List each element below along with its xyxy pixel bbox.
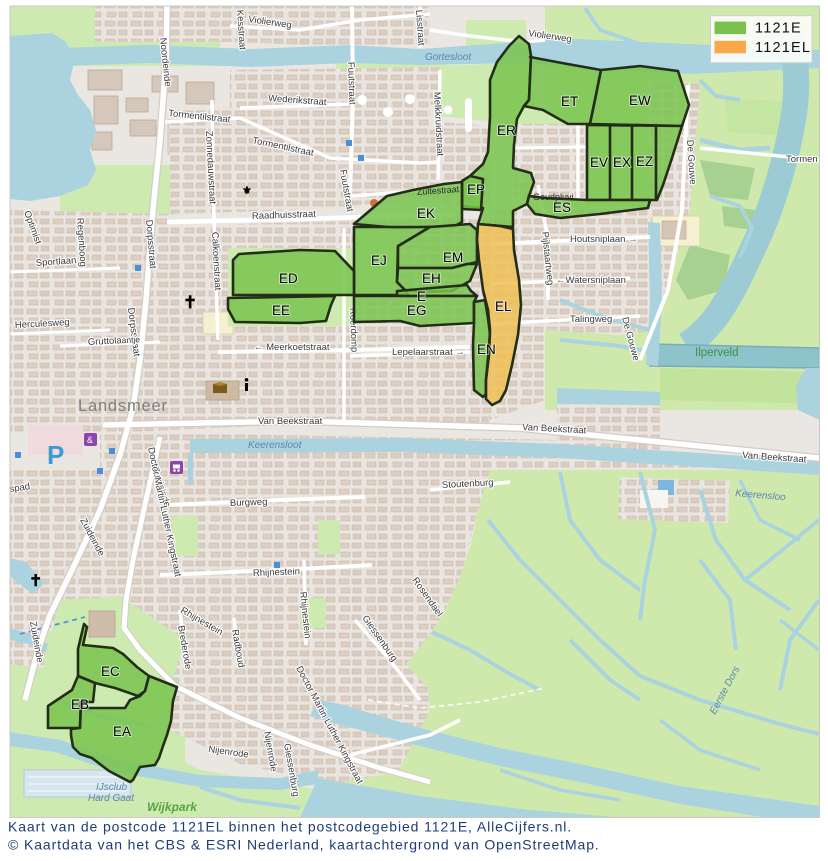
svg-text:Goudpluvi: Goudpluvi	[533, 192, 574, 202]
svg-text:EG: EG	[407, 303, 427, 318]
svg-text:EV: EV	[590, 155, 608, 170]
svg-text:Van Beekstraat: Van Beekstraat	[258, 416, 323, 427]
svg-text:Kaart van de postcode 1121EL b: Kaart van de postcode 1121EL binnen het …	[8, 819, 572, 835]
svg-text:Wijkpark: Wijkpark	[147, 800, 198, 814]
svg-text:Talingweg: Talingweg	[570, 314, 612, 325]
svg-text:P: P	[47, 440, 64, 470]
svg-text:ER: ER	[497, 123, 516, 138]
svg-text:←Watersniplaan: ←Watersniplaan	[556, 275, 626, 286]
svg-text:Keerensloot: Keerensloot	[248, 440, 303, 451]
svg-text:Houtsniplaan →: Houtsniplaan →	[570, 234, 638, 245]
svg-text:EJ: EJ	[371, 253, 387, 268]
svg-text:EW: EW	[629, 93, 651, 108]
svg-text:EM: EM	[443, 250, 463, 265]
svg-text:EA: EA	[113, 724, 131, 739]
svg-text:Hard Gaat: Hard Gaat	[88, 793, 135, 804]
svg-text:Landsmeer: Landsmeer	[78, 397, 168, 415]
svg-text:EK: EK	[417, 206, 435, 221]
svg-text:EC: EC	[101, 664, 120, 679]
svg-text:⚜: ⚜	[242, 185, 252, 197]
svg-text:E: E	[417, 289, 426, 304]
svg-text:&: &	[87, 435, 93, 445]
svg-text:Rhijnestein: Rhijnestein	[253, 566, 300, 579]
svg-text:1121EL: 1121EL	[755, 40, 811, 56]
svg-text:Fuutstraat: Fuutstraat	[345, 62, 357, 105]
svg-text:Lepelaarstraat →: Lepelaarstraat →	[392, 347, 465, 358]
svg-text:ES: ES	[553, 200, 571, 215]
svg-text:EX: EX	[613, 155, 631, 170]
svg-text:EL: EL	[495, 299, 512, 314]
svg-text:← Meerkoetstraat: ← Meerkoetstraat	[254, 342, 330, 353]
svg-text:Burgweg: Burgweg	[230, 497, 268, 509]
svg-text:Ilperveld: Ilperveld	[695, 347, 738, 359]
svg-text:✝: ✝	[29, 573, 42, 590]
svg-text:Gortesloot: Gortesloot	[425, 52, 472, 63]
svg-text:EP: EP	[467, 182, 485, 197]
svg-text:EN: EN	[477, 342, 496, 357]
svg-text:EZ: EZ	[636, 154, 653, 169]
svg-text:ED: ED	[279, 271, 298, 286]
svg-text:1121E: 1121E	[755, 21, 802, 37]
svg-text:EB: EB	[71, 697, 89, 712]
svg-text:Tormen: Tormen	[786, 154, 818, 165]
svg-text:IJsclub: IJsclub	[96, 782, 128, 793]
svg-text:EE: EE	[272, 303, 290, 318]
svg-text:ET: ET	[561, 94, 578, 109]
svg-text:✝: ✝	[183, 293, 197, 312]
svg-text:Raadhuisstraat: Raadhuisstraat	[252, 209, 317, 222]
svg-text:EH: EH	[422, 271, 441, 286]
svg-text:© Kaartdata van het CBS & ESRI: © Kaartdata van het CBS & ESRI Nederland…	[8, 837, 600, 853]
